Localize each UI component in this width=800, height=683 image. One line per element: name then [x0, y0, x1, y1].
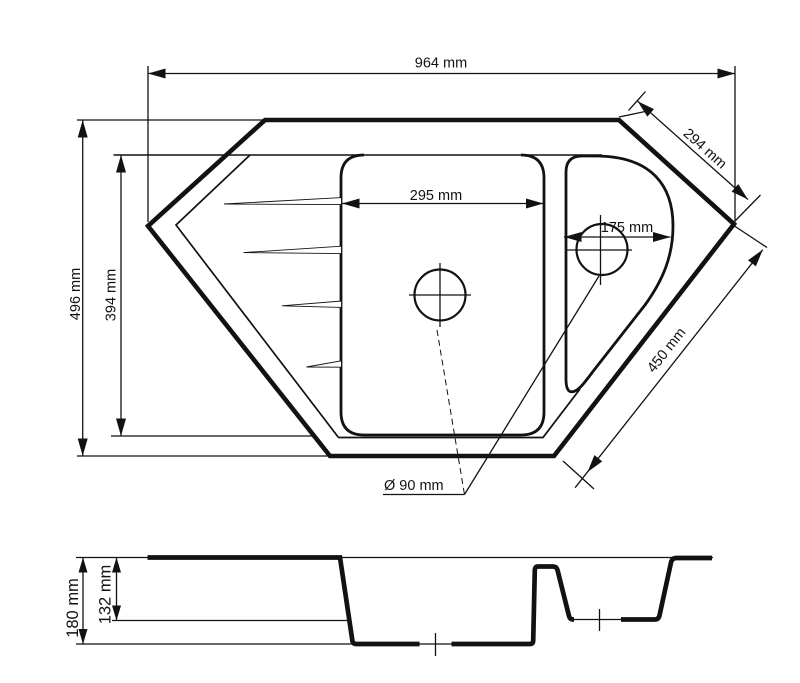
svg-text:294 mm: 294 mm [680, 126, 730, 173]
svg-text:394 mm: 394 mm [104, 269, 120, 321]
svg-text:496 mm: 496 mm [68, 268, 84, 320]
svg-text:132 mm: 132 mm [97, 565, 115, 625]
svg-text:180 mm: 180 mm [64, 578, 82, 638]
svg-text:Ø 90 mm: Ø 90 mm [384, 478, 444, 494]
svg-text:964 mm: 964 mm [415, 56, 467, 72]
svg-text:295 mm: 295 mm [410, 188, 462, 204]
svg-text:175 mm: 175 mm [601, 220, 653, 236]
